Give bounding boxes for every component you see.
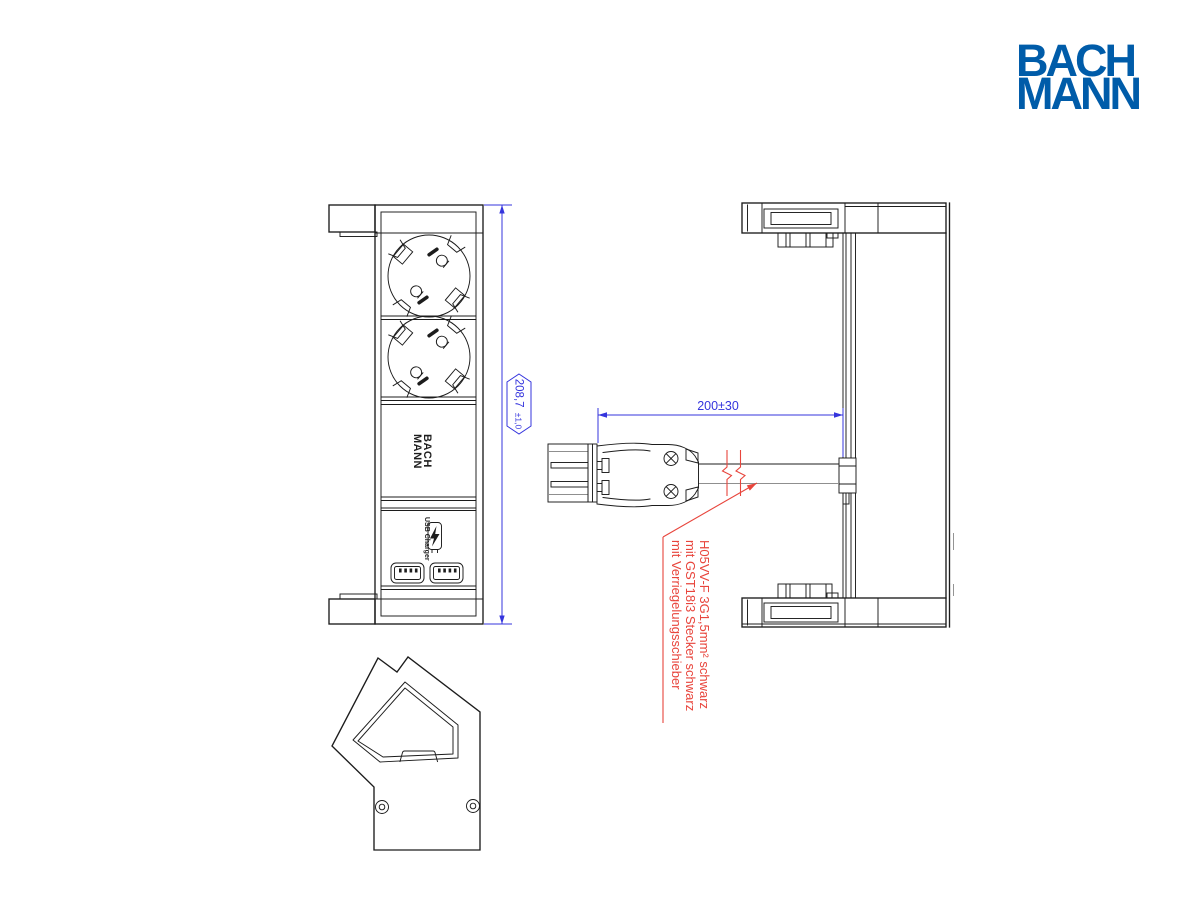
- bottom-recess-outer: [353, 682, 458, 762]
- bottom-clamp-pad: [778, 584, 838, 598]
- top-clamp-pad: [778, 233, 838, 247]
- plug-body: [597, 443, 699, 506]
- bottom-screw-1: [376, 801, 389, 814]
- side-bottom-bracket: [742, 584, 946, 627]
- device-logo-line2: MANN: [411, 434, 423, 469]
- top-flange-lip: [340, 232, 377, 237]
- schuko-socket-2: [366, 294, 493, 421]
- bottom-recess-inner: [358, 688, 453, 757]
- usb-port-1: [391, 563, 424, 583]
- front-housing-outline: [329, 205, 483, 624]
- plug-contact-slot-1: [551, 463, 588, 469]
- side-top-bracket: [742, 203, 946, 247]
- top-flange: [329, 205, 375, 232]
- drawing-sheet: BACH MANN: [0, 0, 1200, 900]
- gst18i3-plug: [548, 443, 699, 506]
- cable-note-line1: H05VV-F 3G1,5mm² schwarz: [697, 540, 712, 709]
- dimension-overall-height: 208,7 ±1,0: [484, 205, 531, 624]
- dim-arrow-right: [834, 412, 843, 418]
- height-dim-tolerance: ±1,0: [514, 413, 524, 430]
- svg-text:208,7 ±1,0: 208,7 ±1,0: [513, 379, 525, 430]
- technical-drawing: BACH MANN USB Charger: [0, 0, 1200, 900]
- dimension-cable-length: 200±30: [598, 399, 843, 457]
- cable-length-dim-value: 200±30: [697, 399, 739, 413]
- cable-note-annotation: H05VV-F 3G1,5mm² schwarz mit GST18i3 Ste…: [663, 483, 757, 723]
- front-view: BACH MANN USB Charger: [329, 205, 492, 624]
- bottom-view: [332, 657, 480, 850]
- cable-gland: [839, 458, 856, 504]
- device-logo: BACH MANN: [411, 434, 433, 469]
- schuko-socket-1: [366, 213, 493, 340]
- cable-note-line2: mit GST18i3 Stecker schwarz: [683, 540, 698, 711]
- dim-arrow-left: [598, 412, 607, 418]
- dim-arrow-up: [499, 205, 504, 214]
- usb-port-2: [430, 563, 463, 583]
- cable-note-line3: mit Verriegelungsschieber: [669, 540, 684, 690]
- supply-cable: [699, 450, 840, 496]
- plug-latch-pins: [597, 459, 609, 495]
- plug-strain-wing-top: [686, 449, 698, 463]
- cable-break-mark-2: [736, 450, 745, 496]
- usb-charger-module: USB Charger: [391, 517, 463, 583]
- dim-arrow-down: [499, 616, 504, 625]
- bottom-screw-2: [467, 800, 480, 813]
- leader-arrow: [747, 483, 757, 491]
- bottom-flange: [329, 599, 375, 624]
- plug-screw-2: [664, 485, 678, 499]
- bottom-flange-lip: [340, 594, 377, 599]
- side-body: [839, 203, 954, 627]
- cable-break-mark-1: [723, 450, 732, 496]
- plug-contact-slot-2: [551, 482, 588, 488]
- plug-screw-1: [664, 452, 678, 466]
- plug-strain-wing-bottom: [686, 487, 698, 501]
- height-dim-value: 208,7: [513, 379, 525, 408]
